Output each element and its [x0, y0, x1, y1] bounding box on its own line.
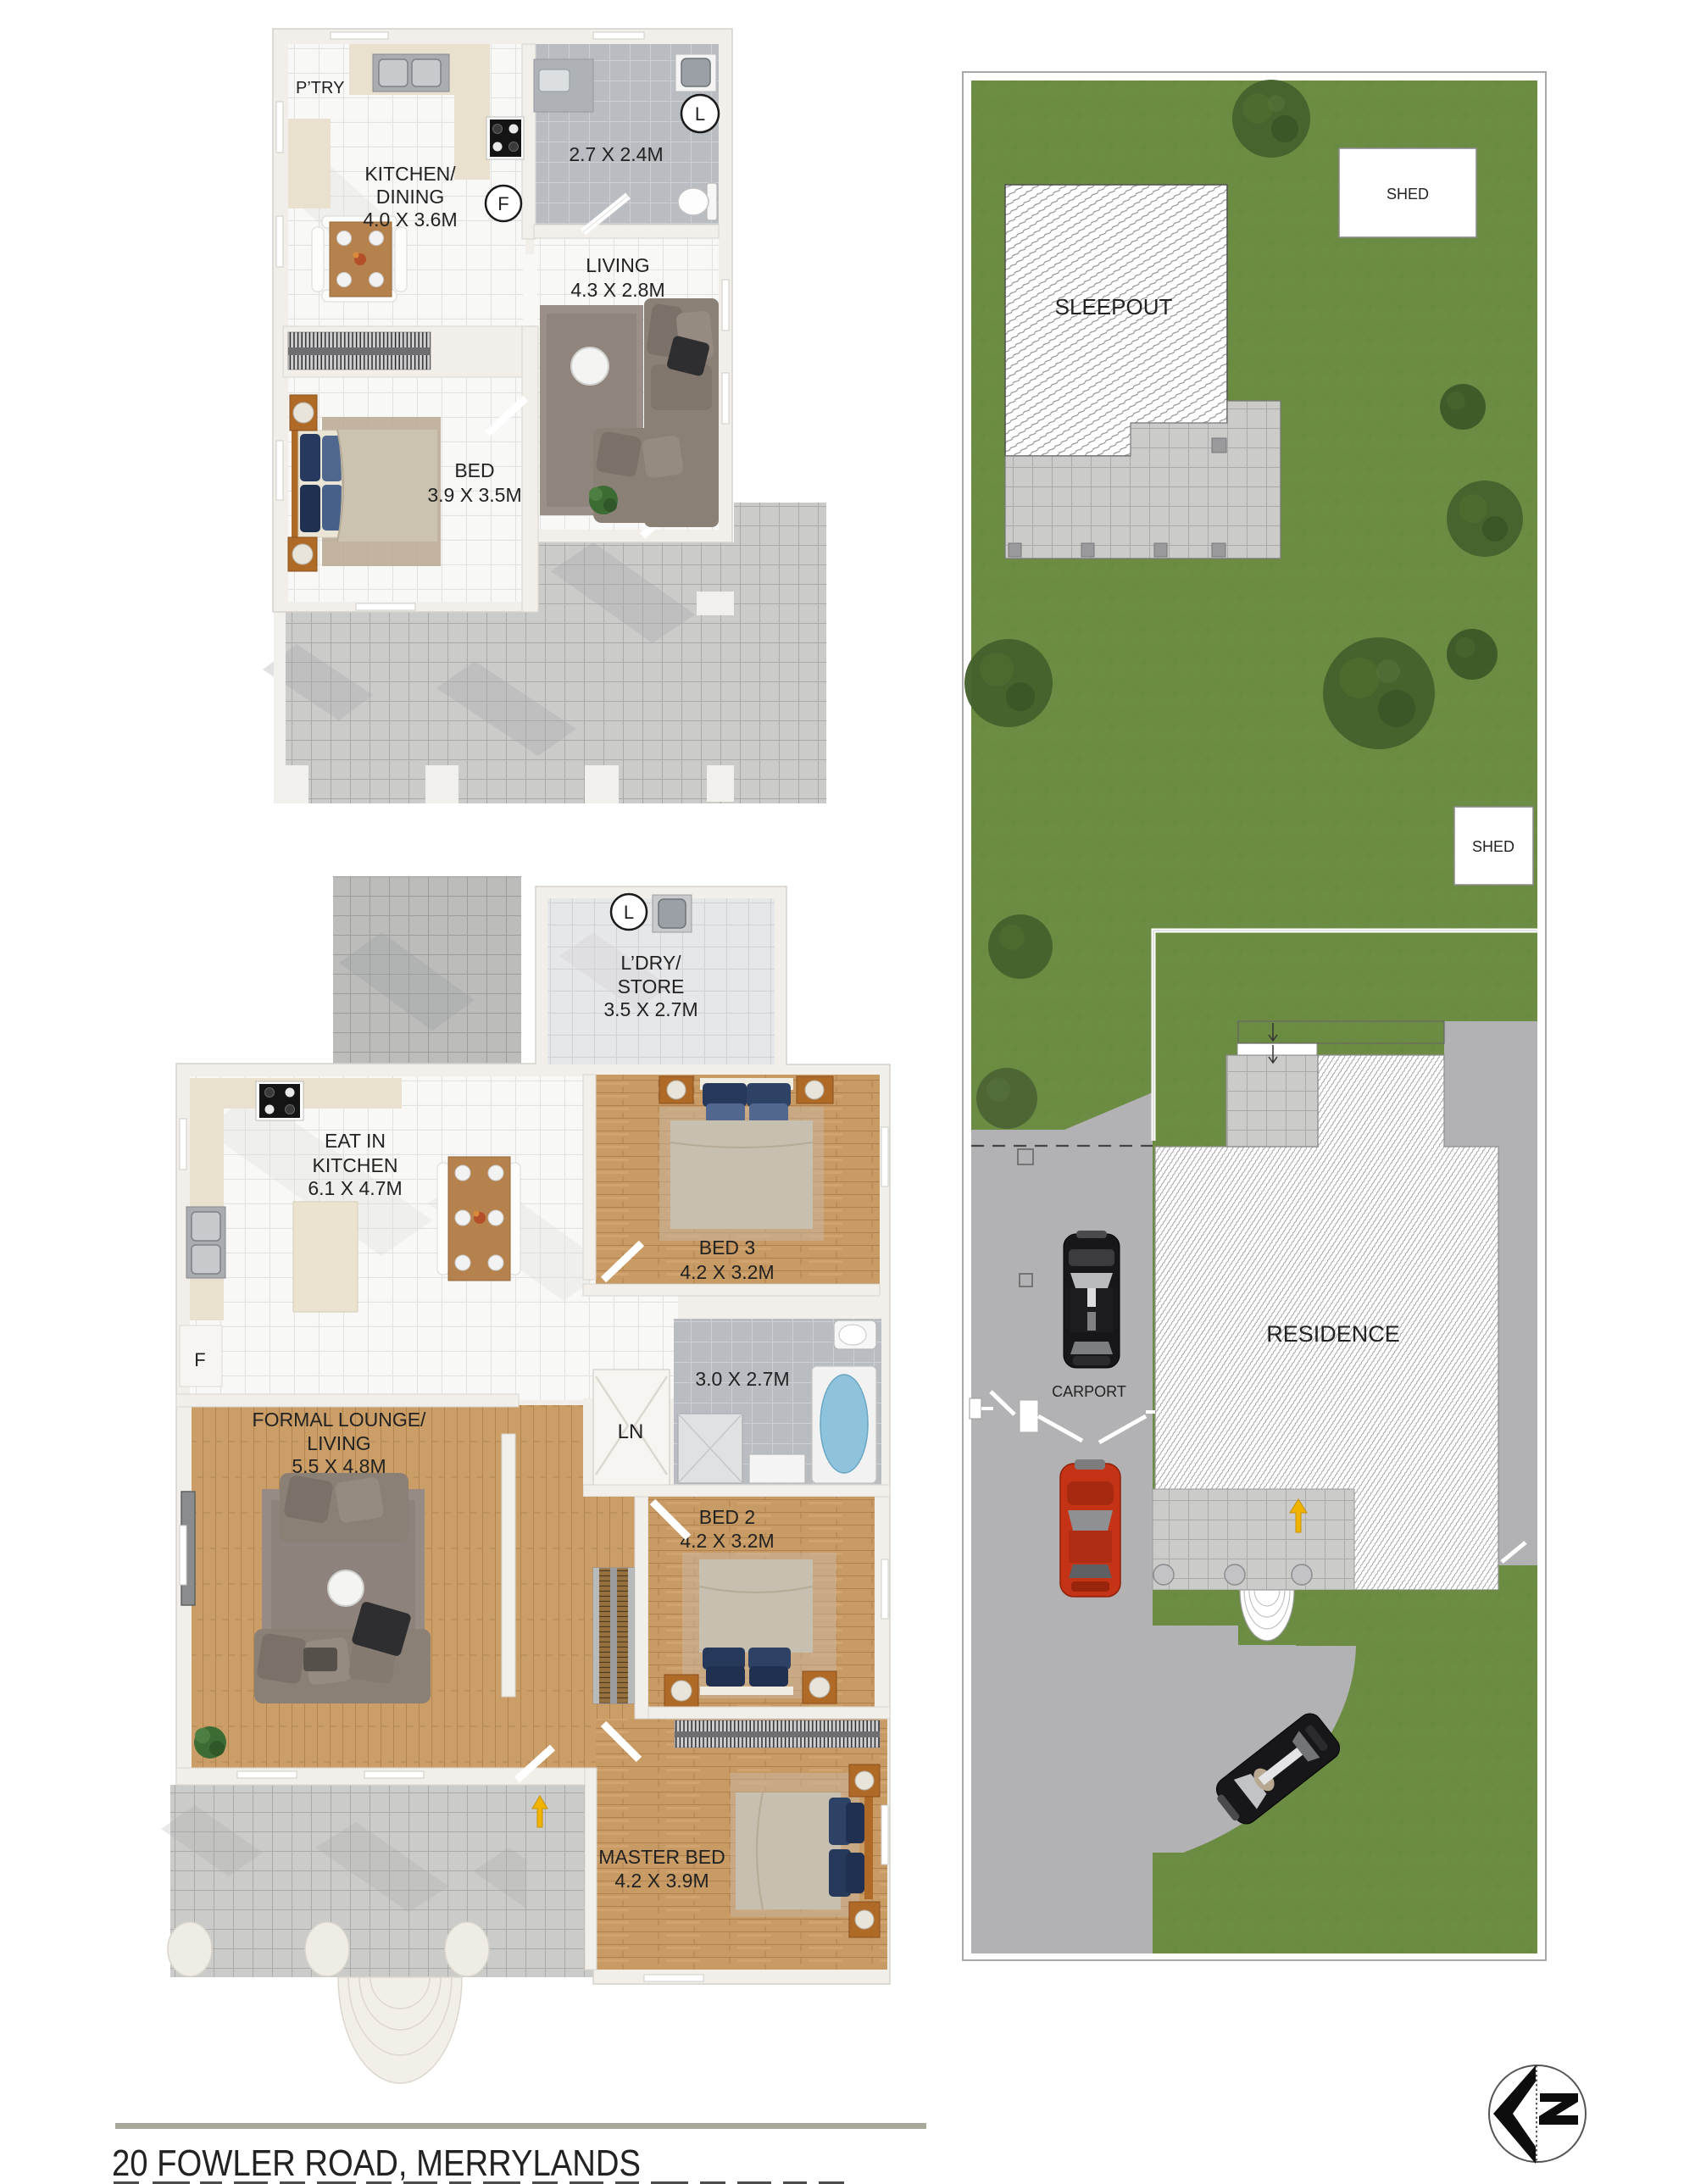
svg-text:4.0 X 3.6M: 4.0 X 3.6M: [363, 208, 457, 231]
svg-text:STORE: STORE: [618, 975, 685, 998]
svg-text:4.2 X 3.9M: 4.2 X 3.9M: [614, 1870, 709, 1892]
svg-text:LIVING: LIVING: [307, 1432, 370, 1454]
svg-text:LN: LN: [618, 1420, 644, 1443]
svg-text:KITCHEN: KITCHEN: [313, 1154, 398, 1176]
svg-text:L’DRY/: L’DRY/: [620, 952, 681, 974]
svg-text:4.3 X 2.8M: 4.3 X 2.8M: [570, 279, 664, 301]
svg-text:CARPORT: CARPORT: [1052, 1383, 1126, 1400]
svg-text:KITCHEN/: KITCHEN/: [364, 163, 456, 185]
svg-text:DINING: DINING: [376, 186, 445, 208]
svg-text:SHED: SHED: [1387, 186, 1429, 203]
svg-text:MASTER BED: MASTER BED: [598, 1846, 725, 1868]
svg-text:P’TRY: P’TRY: [296, 79, 344, 97]
svg-text:20 FOWLER ROAD, MERRYLANDS: 20 FOWLER ROAD, MERRYLANDS: [112, 2142, 641, 2184]
svg-text:4.2 X 3.2M: 4.2 X 3.2M: [680, 1530, 774, 1552]
svg-text:BED: BED: [454, 459, 494, 481]
svg-text:SLEEPOUT: SLEEPOUT: [1055, 294, 1173, 320]
svg-text:BED 3: BED 3: [699, 1236, 755, 1259]
svg-text:4.2 X 3.2M: 4.2 X 3.2M: [680, 1261, 774, 1283]
svg-text:F: F: [194, 1349, 205, 1370]
svg-text:L: L: [695, 103, 705, 125]
svg-text:3.5 X 2.7M: 3.5 X 2.7M: [603, 998, 697, 1020]
svg-text:EAT IN: EAT IN: [325, 1130, 386, 1152]
svg-text:SHED: SHED: [1472, 838, 1514, 855]
svg-text:F: F: [497, 193, 508, 214]
svg-text:6.1 X 4.7M: 6.1 X 4.7M: [308, 1177, 402, 1199]
svg-text:BED 2: BED 2: [699, 1506, 755, 1528]
svg-text:LIVING: LIVING: [586, 254, 649, 276]
svg-text:2.7 X 2.4M: 2.7 X 2.4M: [569, 143, 663, 165]
svg-text:FORMAL LOUNGE/: FORMAL LOUNGE/: [253, 1409, 427, 1431]
svg-text:3.0 X 2.7M: 3.0 X 2.7M: [695, 1368, 789, 1390]
svg-text:L: L: [624, 902, 634, 923]
svg-text:3.9 X 3.5M: 3.9 X 3.5M: [427, 484, 521, 506]
svg-text:RESIDENCE: RESIDENCE: [1266, 1321, 1400, 1347]
